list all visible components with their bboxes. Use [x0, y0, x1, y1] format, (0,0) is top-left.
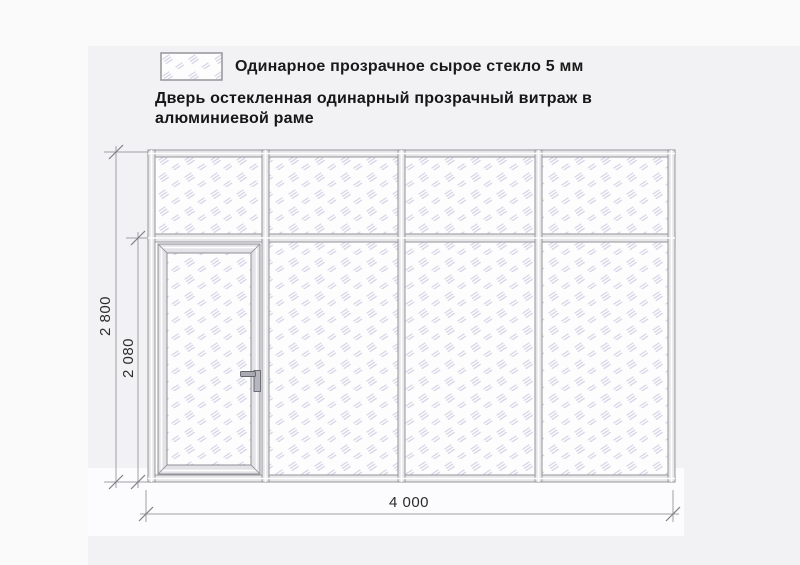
door-leaf [158, 244, 261, 474]
dim-label-door-height: 2 080 [120, 338, 137, 378]
dim-label-overall-width: 4 000 [389, 494, 429, 511]
glass-panels-top-row [155, 157, 668, 234]
dim-label-overall-height: 2 800 [97, 296, 114, 336]
partition-elevation-drawing: 2 800 2 080 4 000 [0, 0, 800, 565]
door-glass [167, 253, 251, 465]
